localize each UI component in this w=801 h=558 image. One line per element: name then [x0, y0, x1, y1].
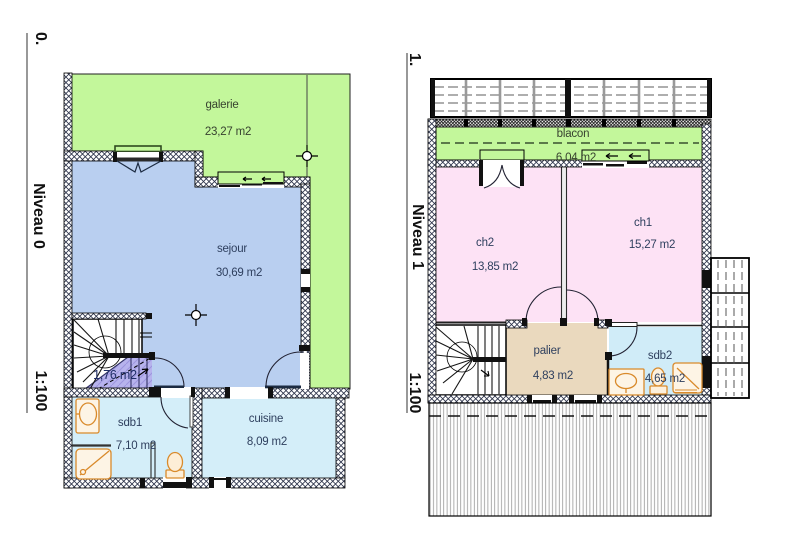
svg-text:Niveau 1: Niveau 1: [409, 204, 426, 270]
svg-text:palier: palier: [534, 345, 561, 357]
svg-text:Niveau 0: Niveau 0: [30, 183, 47, 249]
svg-text:galerie: galerie: [205, 99, 238, 111]
svg-text:23,27 m2: 23,27 m2: [205, 126, 251, 138]
svg-text:cuisine: cuisine: [249, 413, 283, 425]
svg-text:sdb1: sdb1: [118, 417, 142, 429]
svg-text:6,04 m2: 6,04 m2: [556, 152, 596, 164]
svg-text:15,27 m2: 15,27 m2: [629, 239, 675, 251]
svg-text:13,85 m2: 13,85 m2: [472, 261, 518, 273]
svg-text:7,10 m2: 7,10 m2: [116, 440, 156, 452]
svg-text:4,65 m2: 4,65 m2: [645, 373, 685, 385]
svg-text:4,83 m2: 4,83 m2: [533, 370, 573, 382]
svg-text:1,76 m2: 1,76 m2: [93, 368, 137, 382]
svg-text:8,09 m2: 8,09 m2: [247, 436, 287, 448]
svg-text:sdb2: sdb2: [648, 350, 672, 362]
svg-text:blacon: blacon: [557, 128, 590, 140]
svg-text:ch2: ch2: [476, 237, 494, 249]
svg-text:30,69 m2: 30,69 m2: [216, 267, 262, 279]
svg-text:sejour: sejour: [217, 243, 247, 255]
svg-text:1.: 1.: [406, 53, 423, 66]
svg-text:1:100: 1:100: [406, 373, 423, 414]
svg-text:1:100: 1:100: [32, 371, 49, 412]
svg-text:ch1: ch1: [634, 217, 652, 229]
svg-text:0.: 0.: [32, 32, 49, 45]
